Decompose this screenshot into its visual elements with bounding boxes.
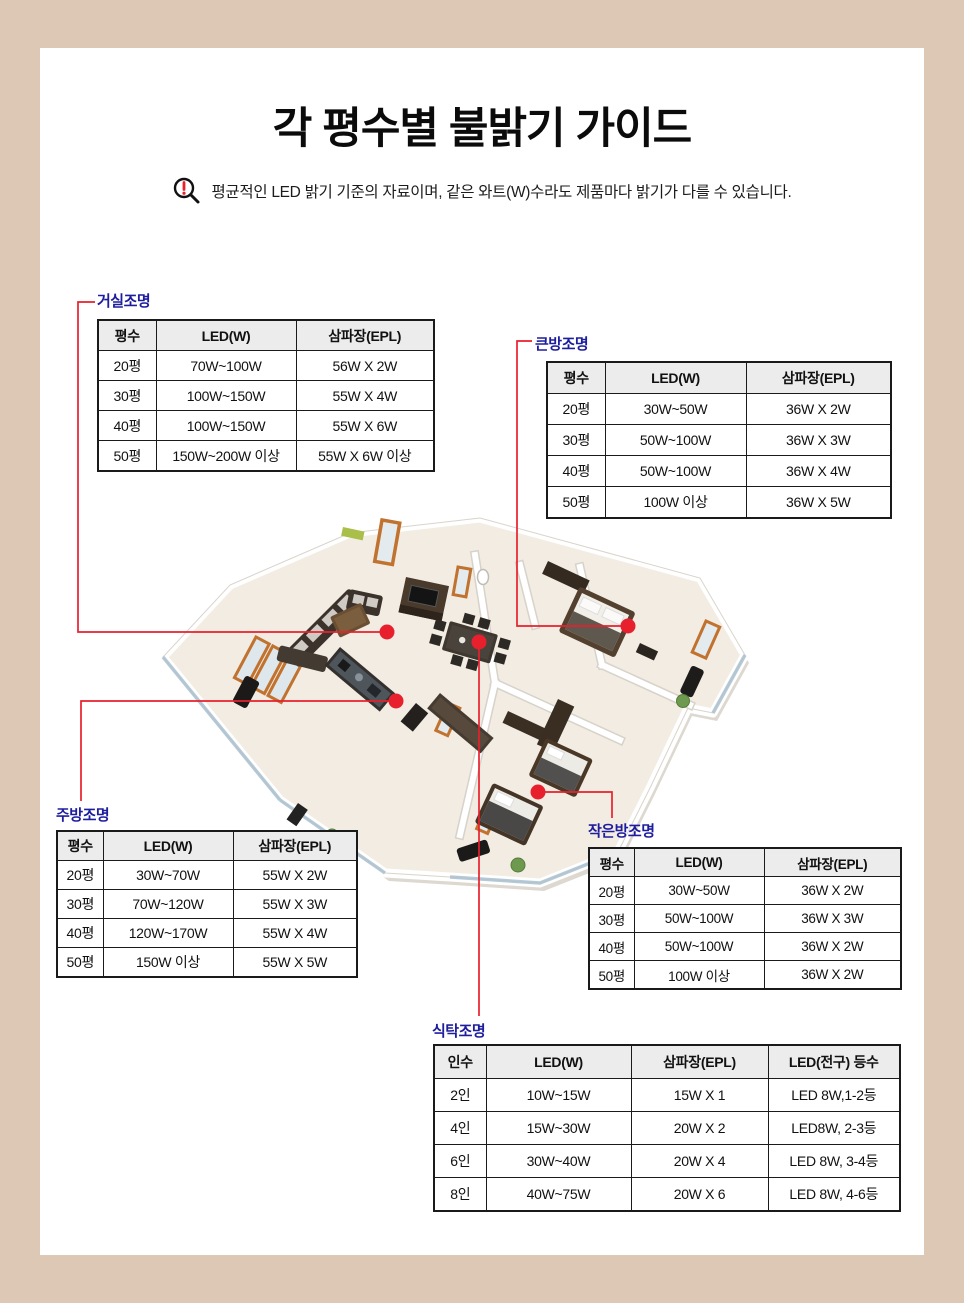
column-header: 평수 <box>98 320 156 351</box>
table-cell: 30W~40W <box>486 1145 631 1178</box>
table-cell: 120W~170W <box>103 919 233 948</box>
table-cell: 40평 <box>98 411 156 441</box>
table-cell: 100W 이상 <box>634 961 764 990</box>
table-row: 40평120W~170W55W X 4W <box>57 919 357 948</box>
table-cell: 55W X 6W 이상 <box>296 441 434 472</box>
table-cell: 20평 <box>547 394 605 425</box>
table-cell: 50W~100W <box>605 425 746 456</box>
table-cell: 15W~30W <box>486 1112 631 1145</box>
table-row: 50평150W 이상55W X 5W <box>57 948 357 978</box>
column-header: 삼파장(EPL) <box>296 320 434 351</box>
table-cell: 40평 <box>547 456 605 487</box>
kitchen-lighting-table: 평수LED(W)삼파장(EPL)20평30W~70W55W X 2W30평70W… <box>56 830 358 978</box>
column-header: LED(전구) 등수 <box>768 1045 900 1079</box>
table-row: 40평100W~150W55W X 6W <box>98 411 434 441</box>
table-cell: 10W~15W <box>486 1079 631 1112</box>
table-cell: 36W X 2W <box>764 933 901 961</box>
table-cell: 36W X 3W <box>764 905 901 933</box>
header-row: 평수LED(W)삼파장(EPL) <box>57 831 357 861</box>
column-header: LED(W) <box>605 362 746 394</box>
table-row: 50평100W 이상36W X 5W <box>547 487 891 519</box>
table-row: 20평70W~100W56W X 2W <box>98 351 434 381</box>
table-cell: 6인 <box>434 1145 486 1178</box>
table-cell: 20평 <box>57 861 103 890</box>
table-cell: 55W X 2W <box>233 861 357 890</box>
column-header: 삼파장(EPL) <box>631 1045 768 1079</box>
table-row: 40평50W~100W36W X 4W <box>547 456 891 487</box>
table-row: 30평70W~120W55W X 3W <box>57 890 357 919</box>
column-header: LED(W) <box>103 831 233 861</box>
table-cell: 150W~200W 이상 <box>156 441 296 472</box>
toilet <box>478 570 489 585</box>
column-header: 삼파장(EPL) <box>764 848 901 877</box>
table-cell: 56W X 2W <box>296 351 434 381</box>
table-row: 40평50W~100W36W X 2W <box>589 933 901 961</box>
table-cell: 50W~100W <box>634 905 764 933</box>
table-cell: LED 8W,1-2등 <box>768 1079 900 1112</box>
section-label-small-room: 작은방조명 <box>588 820 655 841</box>
table-row: 20평30W~70W55W X 2W <box>57 861 357 890</box>
table-cell: 2인 <box>434 1079 486 1112</box>
table-cell: 20W X 2 <box>631 1112 768 1145</box>
page-title: 각 평수별 불밝기 가이드 <box>0 94 964 156</box>
table-cell: 50W~100W <box>634 933 764 961</box>
table-cell: 50평 <box>589 961 634 990</box>
table-cell: 100W~150W <box>156 411 296 441</box>
header-row: 평수LED(W)삼파장(EPL) <box>547 362 891 394</box>
section-label-big-room: 큰방조명 <box>535 333 588 354</box>
section-label-dining: 식탁조명 <box>432 1020 485 1041</box>
column-header: 인수 <box>434 1045 486 1079</box>
column-header: 평수 <box>589 848 634 877</box>
table-row: 6인30W~40W20W X 4LED 8W, 3-4등 <box>434 1145 900 1178</box>
living-room-lighting-table: 평수LED(W)삼파장(EPL)20평70W~100W56W X 2W30평10… <box>97 319 435 472</box>
column-header: 삼파장(EPL) <box>746 362 891 394</box>
table-cell: 70W~120W <box>103 890 233 919</box>
table-cell: 40W~75W <box>486 1178 631 1212</box>
table-cell: 20평 <box>98 351 156 381</box>
table-row: 2인10W~15W15W X 1LED 8W,1-2등 <box>434 1079 900 1112</box>
header-row: 인수LED(W)삼파장(EPL)LED(전구) 등수 <box>434 1045 900 1079</box>
table-cell: 100W 이상 <box>605 487 746 519</box>
table-cell: 30평 <box>98 381 156 411</box>
table-cell: 50평 <box>57 948 103 978</box>
table-cell: 36W X 2W <box>764 877 901 905</box>
column-header: LED(W) <box>486 1045 631 1079</box>
table-cell: 50W~100W <box>605 456 746 487</box>
table-row: 20평30W~50W36W X 2W <box>547 394 891 425</box>
table-cell: 30평 <box>57 890 103 919</box>
table-cell: 100W~150W <box>156 381 296 411</box>
table-cell: 20W X 6 <box>631 1178 768 1212</box>
table-cell: 15W X 1 <box>631 1079 768 1112</box>
table-cell: 30평 <box>547 425 605 456</box>
table-row: 50평150W~200W 이상55W X 6W 이상 <box>98 441 434 472</box>
plant <box>677 695 690 708</box>
alert-magnifier-icon <box>172 176 202 206</box>
table-row: 8인40W~75W20W X 6LED 8W, 4-6등 <box>434 1178 900 1212</box>
table-cell: 55W X 4W <box>233 919 357 948</box>
table-cell: 55W X 5W <box>233 948 357 978</box>
table-cell: 36W X 5W <box>746 487 891 519</box>
plant <box>511 858 525 872</box>
header-row: 평수LED(W)삼파장(EPL) <box>98 320 434 351</box>
big-room-lighting-table: 평수LED(W)삼파장(EPL)20평30W~50W36W X 2W30평50W… <box>546 361 892 519</box>
table-cell: 55W X 4W <box>296 381 434 411</box>
door-frame <box>453 567 471 597</box>
column-header: 평수 <box>547 362 605 394</box>
table-cell: LED 8W, 4-6등 <box>768 1178 900 1212</box>
section-label-kitchen: 주방조명 <box>56 804 109 825</box>
dining-lighting-table: 인수LED(W)삼파장(EPL)LED(전구) 등수2인10W~15W15W X… <box>433 1044 901 1212</box>
notice-text: 평균적인 LED 밝기 기준의 자료이며, 같은 와트(W)수라도 제품마다 밝… <box>211 180 791 202</box>
column-header: LED(W) <box>156 320 296 351</box>
column-header: 평수 <box>57 831 103 861</box>
table-cell: 36W X 2W <box>746 394 891 425</box>
table-cell: 50평 <box>547 487 605 519</box>
table-cell: 55W X 3W <box>233 890 357 919</box>
table-cell: 8인 <box>434 1178 486 1212</box>
section-label-living-room: 거실조명 <box>97 290 150 311</box>
table-cell: 36W X 2W <box>764 961 901 990</box>
table-cell: 4인 <box>434 1112 486 1145</box>
table-cell: 30W~70W <box>103 861 233 890</box>
table-cell: 55W X 6W <box>296 411 434 441</box>
table-cell: 36W X 4W <box>746 456 891 487</box>
notice: 평균적인 LED 밝기 기준의 자료이며, 같은 와트(W)수라도 제품마다 밝… <box>0 176 964 206</box>
table-row: 50평100W 이상36W X 2W <box>589 961 901 990</box>
table-cell: 50평 <box>98 441 156 472</box>
table-cell: 36W X 3W <box>746 425 891 456</box>
table-row: 20평30W~50W36W X 2W <box>589 877 901 905</box>
table-cell: 30평 <box>589 905 634 933</box>
table-row: 4인15W~30W20W X 2LED8W, 2-3등 <box>434 1112 900 1145</box>
header-row: 평수LED(W)삼파장(EPL) <box>589 848 901 877</box>
column-header: 삼파장(EPL) <box>233 831 357 861</box>
table-cell: 150W 이상 <box>103 948 233 978</box>
table-cell: 20평 <box>589 877 634 905</box>
small-room-lighting-table: 평수LED(W)삼파장(EPL)20평30W~50W36W X 2W30평50W… <box>588 847 902 990</box>
table-cell: 30W~50W <box>634 877 764 905</box>
column-header: LED(W) <box>634 848 764 877</box>
table-cell: LED8W, 2-3등 <box>768 1112 900 1145</box>
table-row: 30평50W~100W36W X 3W <box>547 425 891 456</box>
table-cell: 30W~50W <box>605 394 746 425</box>
table-cell: LED 8W, 3-4등 <box>768 1145 900 1178</box>
table-row: 30평100W~150W55W X 4W <box>98 381 434 411</box>
table-cell: 20W X 4 <box>631 1145 768 1178</box>
table-cell: 40평 <box>589 933 634 961</box>
table-row: 30평50W~100W36W X 3W <box>589 905 901 933</box>
table-cell: 40평 <box>57 919 103 948</box>
table-cell: 70W~100W <box>156 351 296 381</box>
